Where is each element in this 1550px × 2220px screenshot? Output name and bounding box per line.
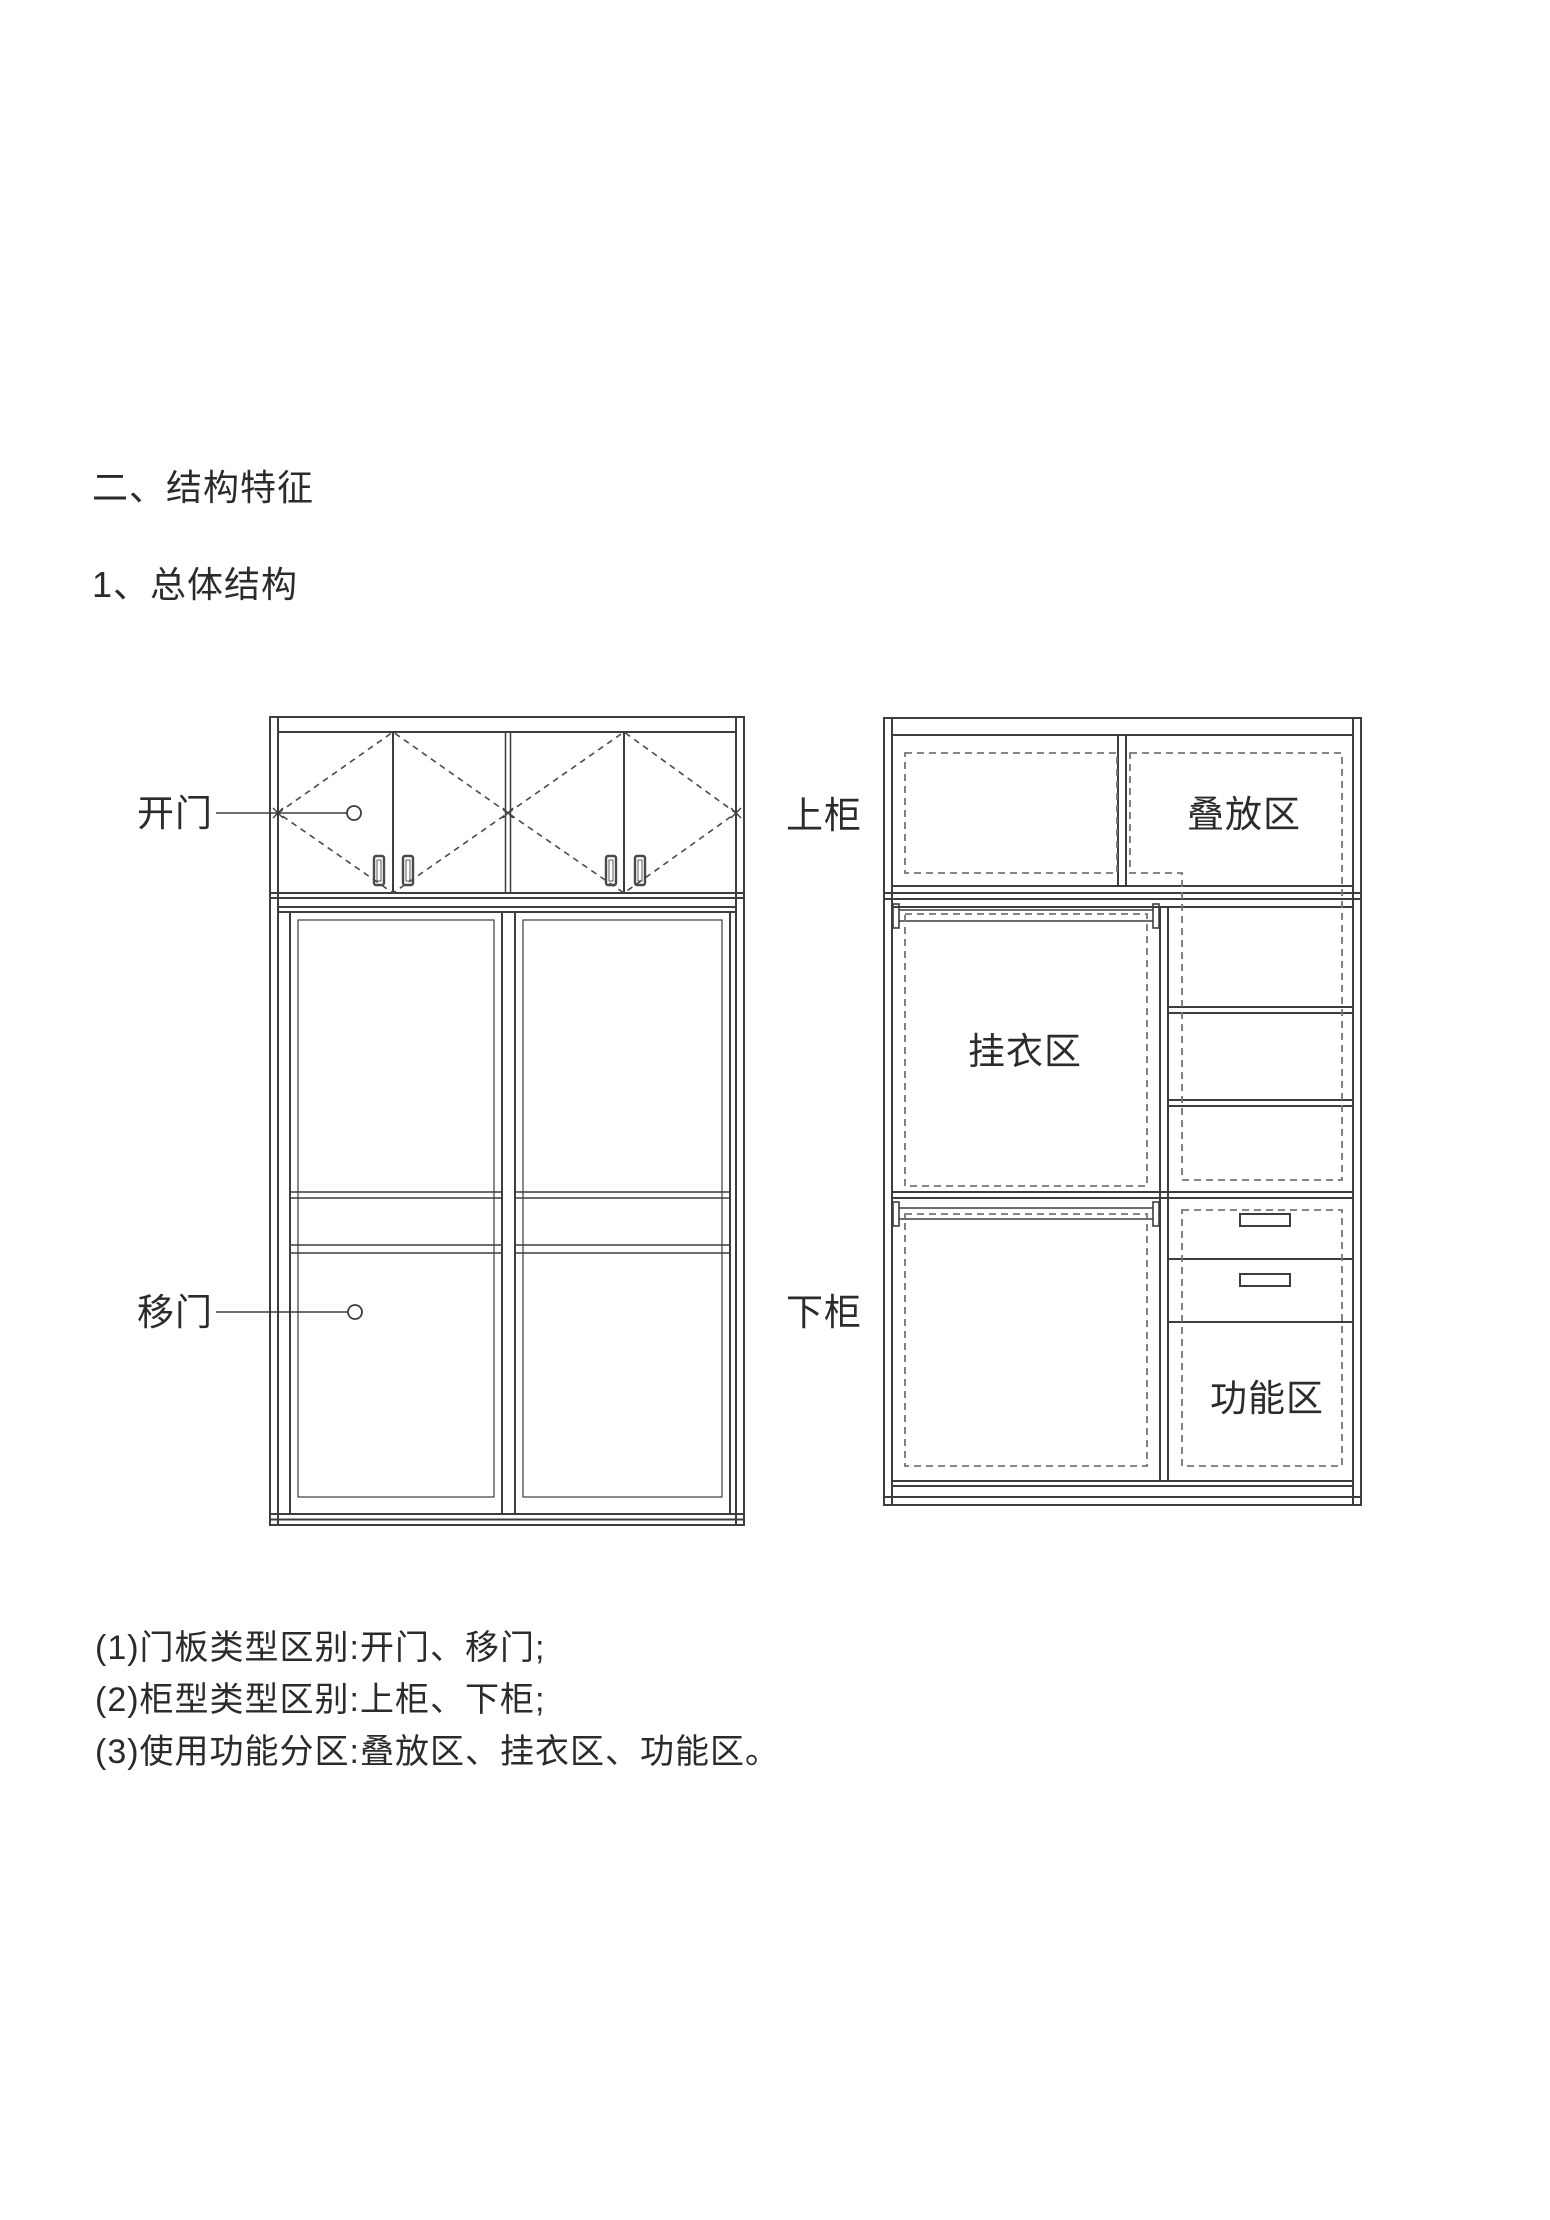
- sliding-door-leader-dot: [348, 1305, 362, 1319]
- functional-zone-outline: [1182, 1210, 1342, 1466]
- notes-block: (1)门板类型区别:开门、移门; (2)柜型类型区别:上柜、下柜; (3)使用功…: [95, 1622, 780, 1778]
- document-page: 二、结构特征 1、总体结构: [0, 0, 1550, 2220]
- zone-dashed-outlines: [905, 753, 1342, 1466]
- shelves-and-drawers: [892, 1007, 1353, 1322]
- note-line-3: (3)使用功能分区:叠放区、挂衣区、功能区。: [95, 1726, 780, 1778]
- label-open-door: 开门: [137, 793, 213, 834]
- open-door-leader-dot: [347, 806, 361, 820]
- drawer-handle-bottom: [1240, 1274, 1290, 1286]
- hanging-zone-outline-lower: [905, 1214, 1147, 1466]
- wardrobe-structure-figure: 开门 移门 上柜 下柜 叠放区 挂衣区 功能区: [0, 0, 1550, 2220]
- sliding-door-rails: [290, 1192, 730, 1253]
- left-sliding-doors: [290, 912, 730, 1514]
- left-wardrobe-diagram: [216, 717, 744, 1525]
- label-lower-cabinet: 下柜: [786, 1292, 862, 1333]
- label-stacking-area: 叠放区: [1187, 794, 1301, 835]
- label-hanging-area: 挂衣区: [968, 1031, 1082, 1072]
- upper-left-zone-outline: [905, 753, 1117, 873]
- cabinet-dividers: [1118, 735, 1168, 1481]
- label-sliding-door: 移门: [137, 1292, 213, 1333]
- note-line-2: (2)柜型类型区别:上柜、下柜;: [95, 1674, 780, 1726]
- label-upper-cabinet: 上柜: [786, 795, 862, 836]
- hinged-door-handles: [374, 856, 645, 885]
- label-functional-area: 功能区: [1210, 1378, 1324, 1419]
- left-carcass-frame: [270, 717, 744, 1525]
- note-line-1: (1)门板类型区别:开门、移门;: [95, 1622, 780, 1674]
- open-door-leader: [216, 806, 361, 820]
- drawer-handle-top: [1240, 1214, 1290, 1226]
